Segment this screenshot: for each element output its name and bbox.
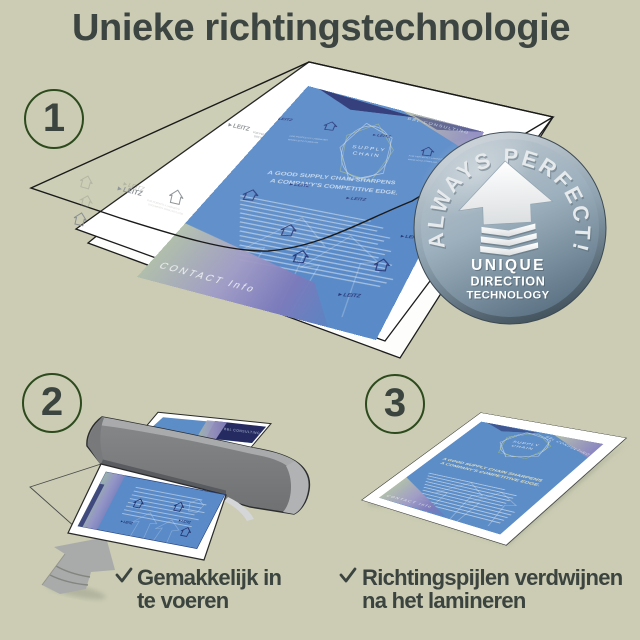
svg-text:DIRECTION: DIRECTION [470, 275, 545, 289]
svg-text:TECHNOLOGY: TECHNOLOGY [467, 290, 550, 302]
svg-text:UNIQUE: UNIQUE [471, 257, 546, 274]
